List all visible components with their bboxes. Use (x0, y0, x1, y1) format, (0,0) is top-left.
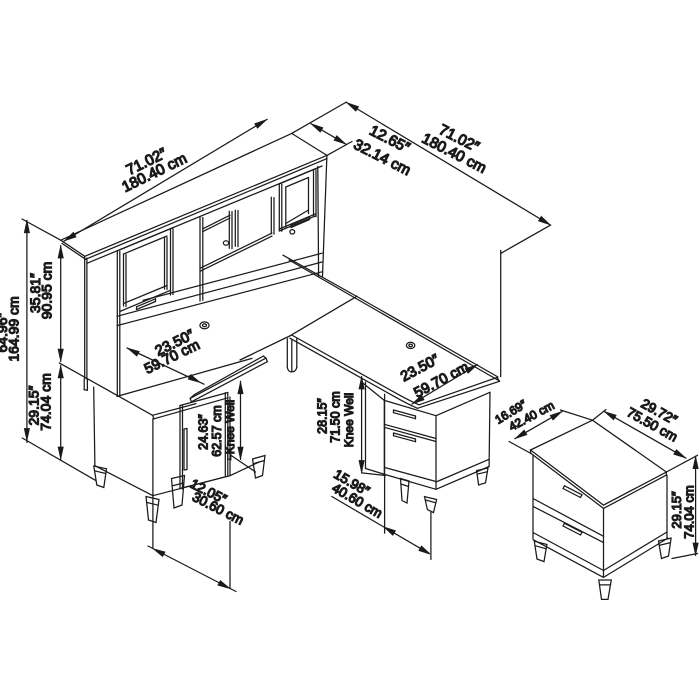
svg-text:164.99 cm: 164.99 cm (5, 296, 21, 361)
svg-text:90.95 cm: 90.95 cm (39, 262, 55, 320)
svg-text:24.63″: 24.63″ (197, 414, 211, 450)
svg-text:74.04 cm: 74.04 cm (38, 373, 54, 431)
svg-text:62.57 cm: 62.57 cm (210, 405, 224, 456)
svg-text:28.15″: 28.15″ (316, 398, 330, 434)
svg-text:Knee Well: Knee Well (342, 393, 356, 447)
svg-text:74.04 cm: 74.04 cm (682, 485, 697, 538)
svg-text:71.50 cm: 71.50 cm (329, 391, 343, 442)
